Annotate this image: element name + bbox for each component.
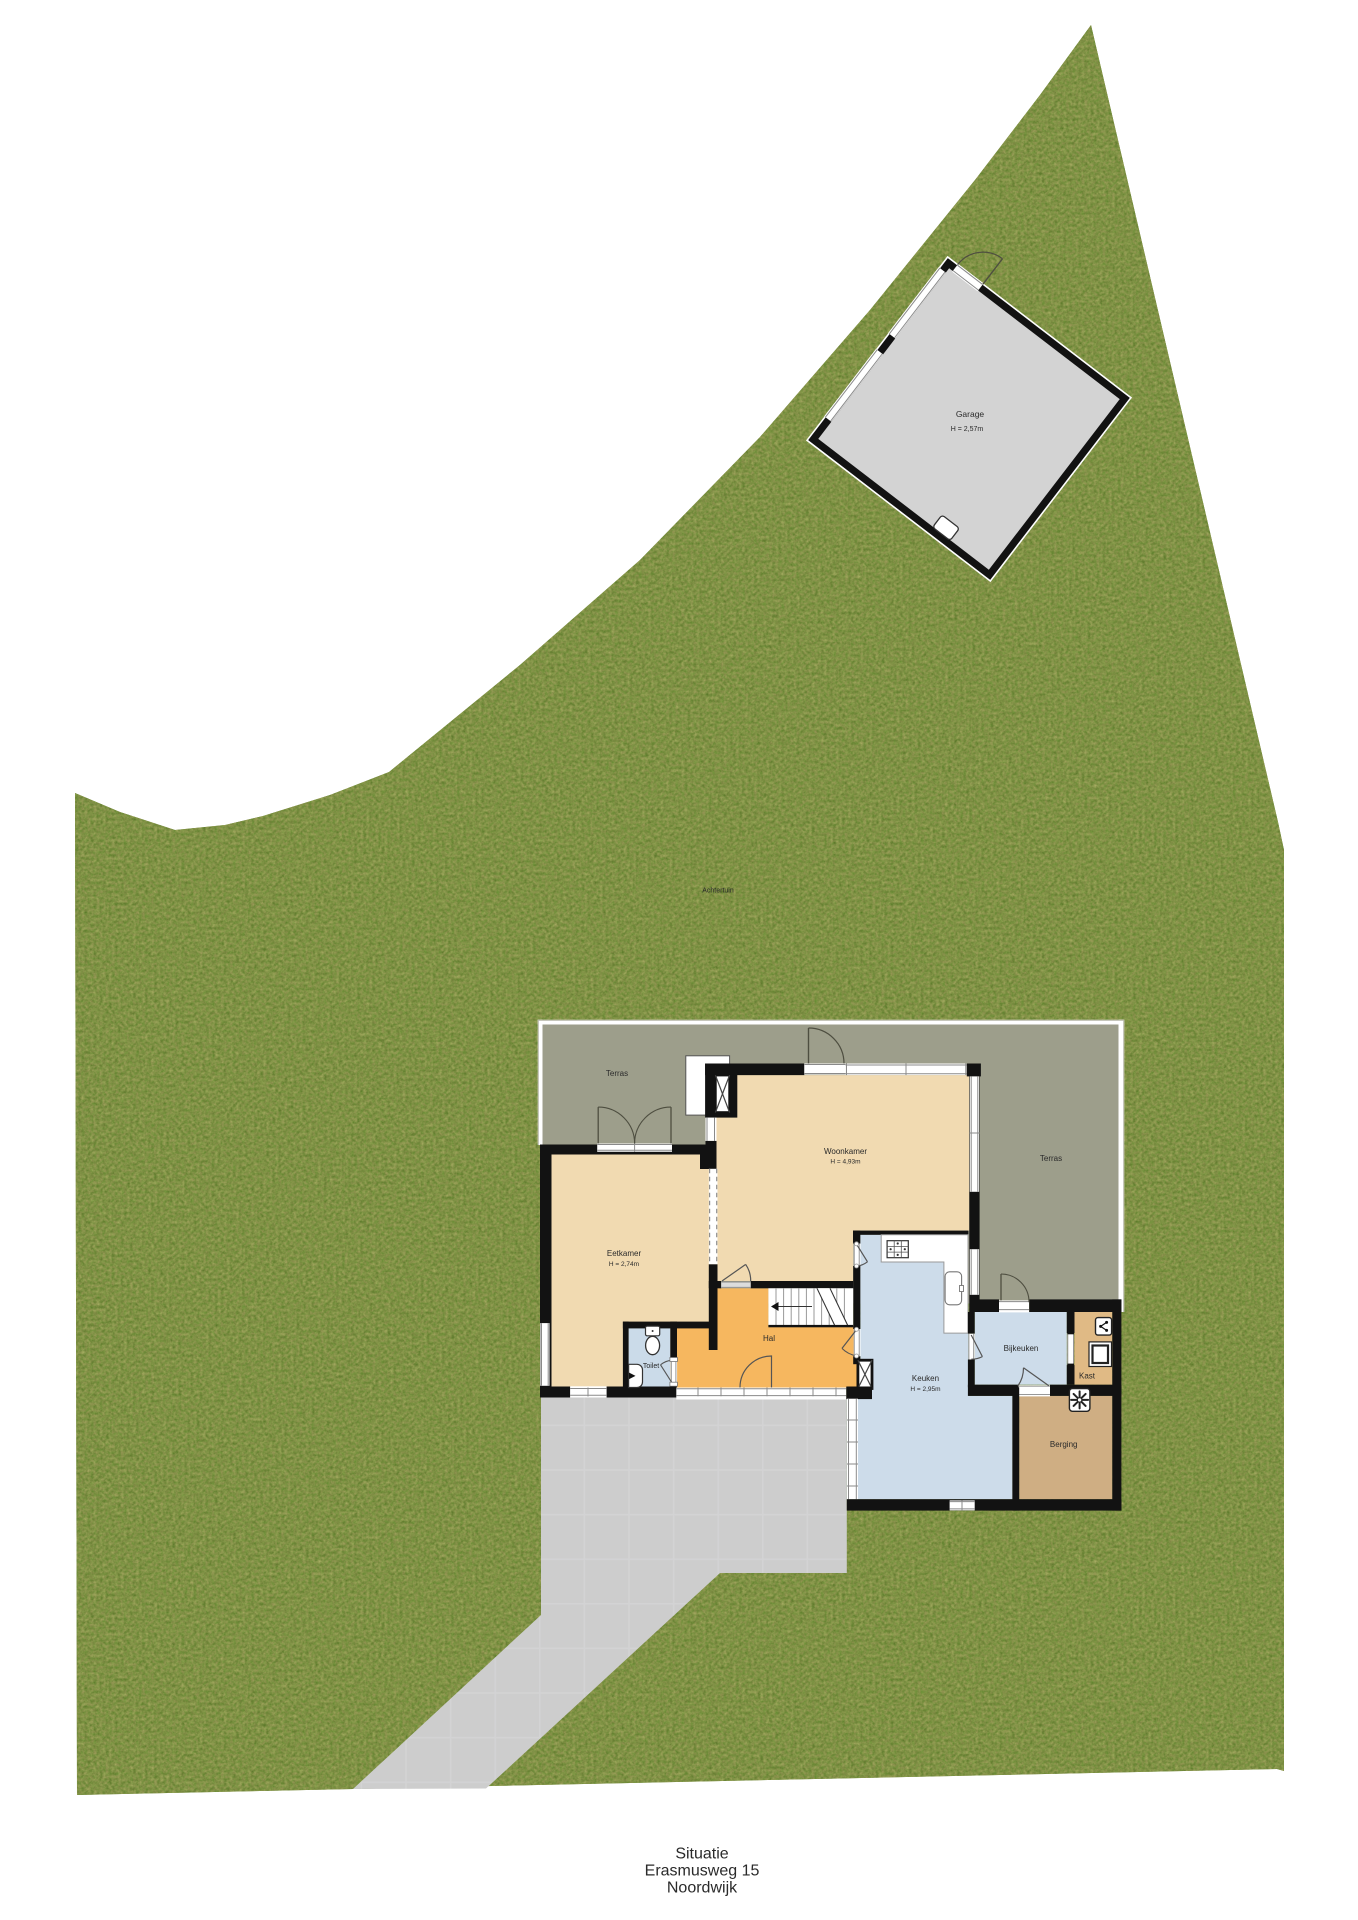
- svg-text:Toilet: Toilet: [643, 1363, 659, 1370]
- svg-text:H = 2,95m: H = 2,95m: [910, 1386, 940, 1393]
- svg-text:Kast: Kast: [1079, 1372, 1096, 1381]
- svg-text:Keuken: Keuken: [912, 1374, 939, 1383]
- svg-text:H = 2,57m: H = 2,57m: [951, 426, 984, 433]
- svg-text:Berging: Berging: [1050, 1440, 1078, 1449]
- svg-text:Noordwijk: Noordwijk: [667, 1880, 738, 1897]
- svg-text:Terras: Terras: [606, 1069, 628, 1078]
- svg-text:Eetkamer: Eetkamer: [607, 1249, 642, 1258]
- svg-text:Erasmusweg 15: Erasmusweg 15: [645, 1863, 760, 1880]
- svg-text:Hal: Hal: [763, 1334, 775, 1343]
- svg-text:Achtertuin: Achtertuin: [702, 888, 734, 895]
- svg-text:Bijkeuken: Bijkeuken: [1004, 1344, 1039, 1353]
- svg-text:H = 2,74m: H = 2,74m: [609, 1261, 639, 1268]
- svg-text:H = 4,93m: H = 4,93m: [830, 1159, 860, 1166]
- svg-text:Situatie: Situatie: [675, 1846, 728, 1863]
- svg-text:Woonkamer: Woonkamer: [824, 1147, 867, 1156]
- svg-text:Terras: Terras: [1040, 1154, 1062, 1163]
- svg-text:Garage: Garage: [956, 409, 985, 419]
